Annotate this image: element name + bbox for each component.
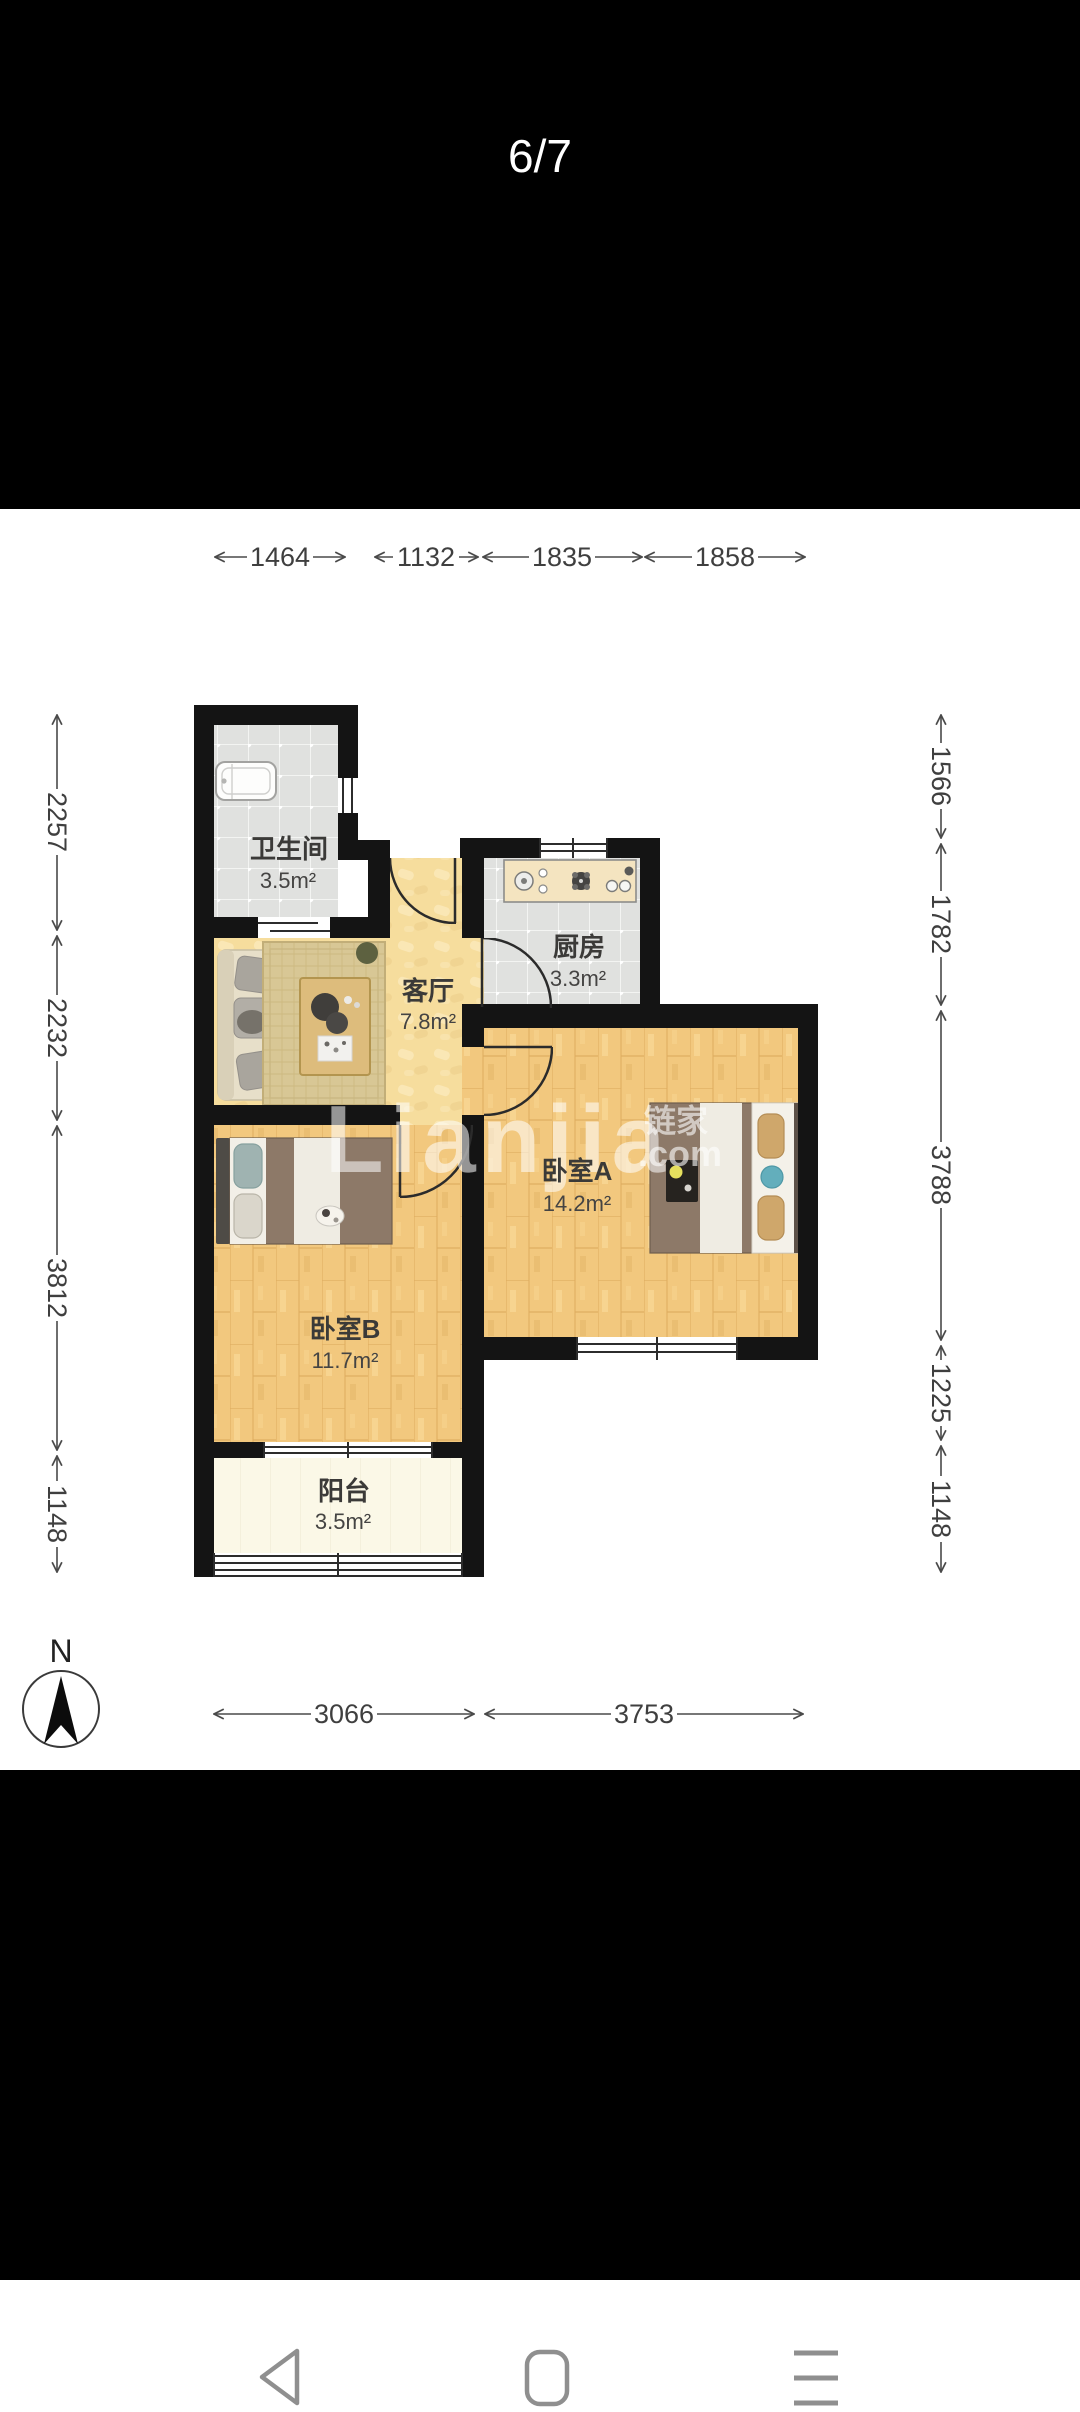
kitchen-doorway-floor [462, 938, 484, 1007]
wall-bath-right-upper [338, 725, 358, 778]
room-area-kitchen: 3.3m² [550, 966, 606, 991]
room-area-balcony: 3.5m² [315, 1509, 371, 1534]
wall-bedroomA-bottom-right [737, 1337, 818, 1360]
coffee-table [300, 978, 370, 1075]
room-name-living: 客厅 [402, 976, 454, 1006]
navigation-bar [0, 2280, 1080, 2412]
dim-right-3: 1225 [926, 1363, 956, 1423]
dim-top-3: 1858 [695, 542, 755, 572]
wall-center-vertical-upper [462, 1028, 484, 1047]
dim-right-1: 1782 [926, 894, 956, 954]
wall-bedroomB-bottom-right [432, 1442, 462, 1458]
room-name-bedroomB: 卧室B [310, 1314, 381, 1344]
bathtub [216, 762, 276, 800]
bed-a-pillow [758, 1114, 784, 1158]
dim-bottom-0: 3066 [314, 1699, 374, 1729]
dim-left-3: 1148 [42, 1485, 72, 1543]
watermark-com: .com [638, 1133, 722, 1174]
dim-left-0: 2257 [42, 792, 72, 852]
wall-bedroomA-top [462, 1004, 818, 1028]
wall-entry-left [338, 840, 390, 860]
wall-bath-right-lower [338, 813, 358, 840]
room-area-bathroom: 3.5m² [260, 868, 316, 893]
dim-top-0: 1464 [250, 542, 310, 572]
dim-top-2: 1835 [532, 542, 592, 572]
bathroom-sliding-door [258, 917, 330, 938]
wall-kitchen-right [640, 858, 660, 1004]
wall-kitchen-left [462, 858, 484, 938]
dim-left-2: 3812 [42, 1258, 72, 1318]
dim-right-4: 1148 [926, 1480, 956, 1538]
photo-viewer-screen: 6/7 [0, 0, 1080, 2412]
room-name-bedroomA: 卧室A [542, 1156, 613, 1186]
compass-label: N [49, 1633, 72, 1669]
dim-top-1: 1132 [397, 542, 455, 572]
wall-outer-left [194, 705, 214, 1577]
wall-bedroomA-bottom-left [484, 1337, 577, 1360]
page-indicator: 6/7 [508, 130, 572, 182]
living-plant [356, 942, 378, 964]
room-area-bedroomA: 14.2m² [543, 1191, 611, 1216]
dim-right-2: 3788 [926, 1145, 956, 1205]
kitchen-counter [504, 860, 636, 902]
room-name-balcony: 阳台 [318, 1476, 370, 1506]
bed-b-pillow [234, 1144, 262, 1188]
navbar-background [0, 2280, 1080, 2412]
bed-a-round-pillow [761, 1166, 783, 1188]
room-name-bathroom: 卫生间 [250, 834, 328, 864]
bathroom-window [338, 778, 358, 813]
dim-left-1: 2232 [42, 998, 72, 1058]
bed-a-pillow [758, 1196, 784, 1240]
wall-kitchen-top-right [607, 838, 660, 858]
bedroomA-window [577, 1337, 737, 1360]
wall-bath-top [194, 705, 358, 725]
bed-b-headboard [216, 1138, 230, 1244]
wall-bedroomA-right [798, 1004, 818, 1360]
wall-kitchen-top-left [460, 838, 540, 858]
dim-right-0: 1566 [926, 746, 956, 806]
wall-bedroomB-bottom-left [214, 1442, 264, 1458]
balcony-window [214, 1553, 462, 1577]
room-name-kitchen: 厨房 [553, 932, 605, 962]
room-area-bedroomB: 11.7m² [312, 1348, 379, 1373]
wall-bath-bottom-left [214, 917, 258, 938]
dim-bottom-1: 3753 [614, 1699, 674, 1729]
room-area-living: 7.8m² [400, 1009, 456, 1034]
bedroomB-balcony-window [264, 1442, 432, 1458]
watermark: Lianjia 链家 .com [325, 1086, 722, 1193]
wall-bath-bottom-right [330, 917, 390, 938]
kitchen-window [540, 838, 607, 858]
watermark-logo: Lianjia [325, 1086, 671, 1193]
bed-b-pillow [234, 1194, 262, 1238]
